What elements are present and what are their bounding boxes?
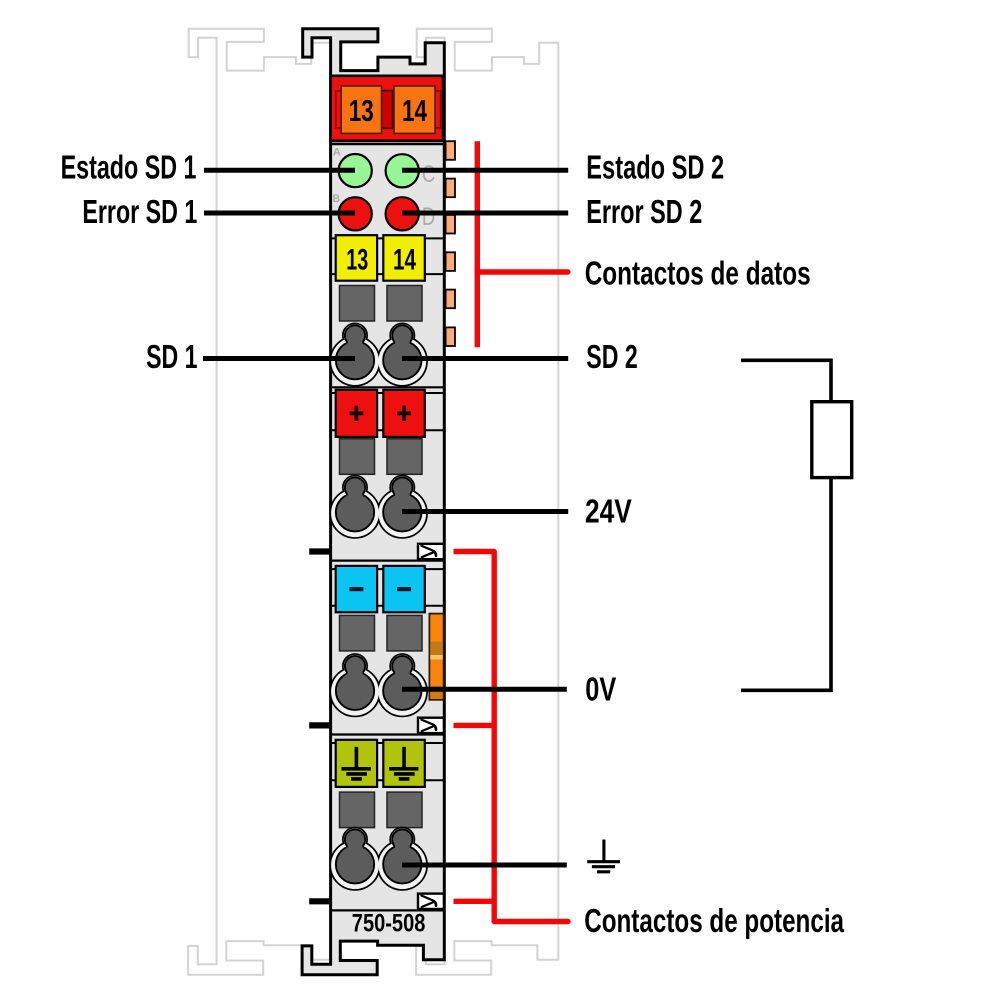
svg-text:Estado SD 1: Estado SD 1 bbox=[61, 150, 197, 187]
svg-text:Error SD 1: Error SD 1 bbox=[82, 194, 197, 231]
svg-text:C: C bbox=[422, 161, 435, 188]
svg-text:24V: 24V bbox=[585, 494, 632, 530]
svg-text:0V: 0V bbox=[585, 671, 616, 708]
svg-text:Estado SD 2: Estado SD 2 bbox=[586, 150, 724, 187]
svg-text:13: 13 bbox=[349, 92, 374, 127]
svg-text:14: 14 bbox=[393, 244, 417, 277]
svg-text:B: B bbox=[333, 193, 341, 205]
svg-text:D: D bbox=[422, 202, 435, 230]
svg-text:14: 14 bbox=[402, 92, 427, 127]
svg-text:750-508: 750-508 bbox=[352, 908, 426, 937]
svg-text:SD 2: SD 2 bbox=[586, 339, 637, 376]
svg-text:Contactos de potencia: Contactos de potencia bbox=[584, 904, 845, 940]
svg-text:Contactos de datos: Contactos de datos bbox=[585, 256, 811, 292]
svg-text:13: 13 bbox=[346, 243, 368, 276]
svg-text:Error SD 2: Error SD 2 bbox=[586, 194, 702, 231]
svg-text:SD 1: SD 1 bbox=[146, 339, 198, 376]
svg-text:A: A bbox=[333, 147, 341, 159]
